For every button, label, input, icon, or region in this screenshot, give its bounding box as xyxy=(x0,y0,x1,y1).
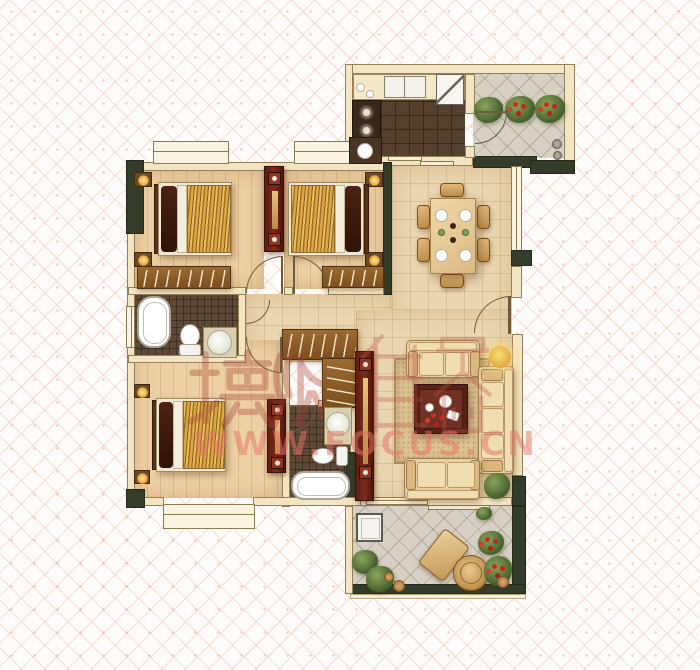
balcony-bottom-dark-wall xyxy=(473,156,537,168)
nightstand xyxy=(134,172,152,187)
entry-door-leaf xyxy=(508,296,511,334)
top-right-dark-wall xyxy=(530,160,575,174)
living-slider-a xyxy=(366,500,428,505)
basin xyxy=(357,143,373,159)
floor-plan: WWW.FOCUS.CN xyxy=(0,0,700,670)
lamp-icon xyxy=(369,175,380,186)
lamp-icon xyxy=(138,175,149,186)
condiment xyxy=(450,237,456,243)
north-balcony-right-wall xyxy=(564,64,575,164)
balcony-pot xyxy=(553,151,562,160)
tub-inner xyxy=(297,477,346,496)
living-right-dark-wall xyxy=(512,476,526,506)
nightstand xyxy=(365,252,383,267)
pillows xyxy=(345,186,361,252)
floor-plan-page: { "document": { "kind": "apartment floor… xyxy=(0,0,700,670)
nightstand xyxy=(134,384,150,398)
sofa-bottom xyxy=(404,458,480,500)
place-setting xyxy=(435,209,448,222)
nightstand xyxy=(134,470,150,484)
kitchen-balcony-divider-lower xyxy=(465,146,475,158)
bedroom1-door-leaf xyxy=(281,256,283,294)
kitchen-slider-a xyxy=(388,156,422,161)
headboard xyxy=(364,184,369,254)
condiment xyxy=(450,223,456,229)
sheet xyxy=(177,185,187,253)
bedroom2-door-leaf xyxy=(293,256,295,294)
balcony-pot xyxy=(384,572,394,582)
south-balcony-sill xyxy=(350,594,526,599)
fridge xyxy=(436,74,464,105)
balcony-door-leaf xyxy=(475,111,507,113)
balcony-pot xyxy=(552,139,562,149)
flowers xyxy=(492,564,497,569)
bathtub xyxy=(137,296,171,348)
lamp-icon xyxy=(137,473,148,484)
side-dish xyxy=(462,229,469,236)
flowers xyxy=(513,102,518,107)
lamp-icon xyxy=(137,387,148,398)
bedroom1-wardrobe xyxy=(137,266,231,289)
hangers xyxy=(326,270,382,286)
dining-table xyxy=(430,198,476,274)
burner xyxy=(358,123,375,138)
dining-right-window xyxy=(511,166,522,252)
sheet xyxy=(335,185,345,253)
dining-right-wall xyxy=(511,266,522,298)
kitchen-dish xyxy=(356,83,365,92)
dining-chair xyxy=(477,238,490,262)
nightstand xyxy=(134,252,152,267)
hangers xyxy=(141,270,229,287)
bedroom3-bay-window xyxy=(163,504,255,529)
burner xyxy=(358,105,375,120)
dining-right-dark-wall xyxy=(511,250,532,266)
flowers xyxy=(485,537,490,542)
balcony-pot xyxy=(497,576,509,588)
back-cushion xyxy=(407,490,479,499)
pillows xyxy=(161,186,177,252)
knob xyxy=(268,172,281,185)
washer-lid xyxy=(361,518,380,539)
pillows xyxy=(159,402,173,468)
south-balcony-left-wall xyxy=(345,506,353,594)
armrest xyxy=(406,460,416,490)
kitchen-dish xyxy=(366,90,374,98)
cabinet-strip xyxy=(272,191,278,229)
place-setting xyxy=(435,249,448,262)
knob xyxy=(268,233,281,246)
sohu-brand-watermark xyxy=(183,342,323,437)
lamp-icon xyxy=(369,255,380,266)
dining-chair xyxy=(440,183,464,197)
side-dish xyxy=(438,229,445,236)
bottom-left-dark-wall xyxy=(126,489,145,508)
cooktop xyxy=(352,100,381,141)
dining-chair xyxy=(417,238,430,262)
kitchen-slider-b xyxy=(420,161,454,166)
kitchen-top-wall xyxy=(345,64,575,74)
bedroom2-bed xyxy=(288,182,364,256)
kitchen-sink xyxy=(384,76,426,98)
dining-chair xyxy=(417,205,430,229)
bedroom2-dining-dark-wall xyxy=(383,162,392,295)
kitchen-low-cabinet xyxy=(349,137,382,164)
dining-chair xyxy=(440,274,464,288)
blanket xyxy=(187,185,231,253)
bathtub xyxy=(291,471,350,500)
flowers xyxy=(544,102,549,107)
place-setting xyxy=(459,249,472,262)
bedrooms-bottom-wall-c xyxy=(328,287,384,295)
washing-machine xyxy=(356,513,383,542)
dining-chair xyxy=(477,205,490,229)
bedroom1-bay-window xyxy=(153,141,229,164)
knob xyxy=(359,466,372,479)
sheet xyxy=(173,401,183,469)
seat-cushion xyxy=(417,462,446,488)
place-setting xyxy=(459,209,472,222)
divider-cabinet xyxy=(264,166,284,252)
south-balcony-right-dark-wall xyxy=(512,506,526,594)
bedroom1-bed xyxy=(158,182,232,256)
bedroom2-wardrobe xyxy=(322,266,384,288)
seat-cushion xyxy=(447,462,475,488)
balcony-pot xyxy=(393,580,405,592)
bathroom1-window xyxy=(126,306,135,348)
tub-inner xyxy=(143,302,167,344)
table-ring xyxy=(460,562,482,584)
watermark-url: WWW.FOCUS.CN xyxy=(193,424,538,463)
hangers xyxy=(327,362,355,406)
blanket xyxy=(291,185,335,253)
lamp-icon xyxy=(138,255,149,266)
bedrooms-bottom-wall-b xyxy=(284,287,293,295)
